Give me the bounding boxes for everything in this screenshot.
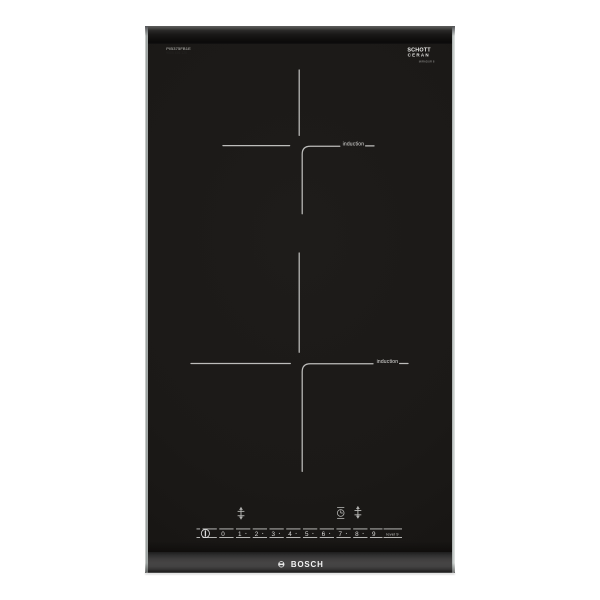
svg-text:9000 456 120: 9000 456 120	[166, 51, 187, 55]
svg-text:0: 0	[221, 531, 225, 538]
svg-text:4: 4	[288, 531, 292, 538]
svg-text:3: 3	[271, 531, 275, 538]
svg-text:9: 9	[372, 531, 376, 538]
svg-text:induction: induction	[343, 141, 365, 147]
svg-text:CERAN: CERAN	[408, 52, 430, 57]
svg-text:2: 2	[255, 531, 259, 538]
svg-text:6: 6	[322, 531, 326, 538]
svg-text:8: 8	[355, 531, 359, 538]
svg-text:BOSCH: BOSCH	[291, 560, 324, 569]
svg-text:MIRADUR 8: MIRADUR 8	[419, 60, 435, 64]
svg-text:7: 7	[338, 531, 342, 538]
svg-text:5: 5	[305, 531, 309, 538]
svg-text:PIB375FB1E: PIB375FB1E	[166, 46, 191, 51]
svg-text:induction: induction	[377, 359, 399, 365]
svg-text:level 9: level 9	[386, 531, 399, 536]
svg-text:1: 1	[238, 531, 242, 538]
